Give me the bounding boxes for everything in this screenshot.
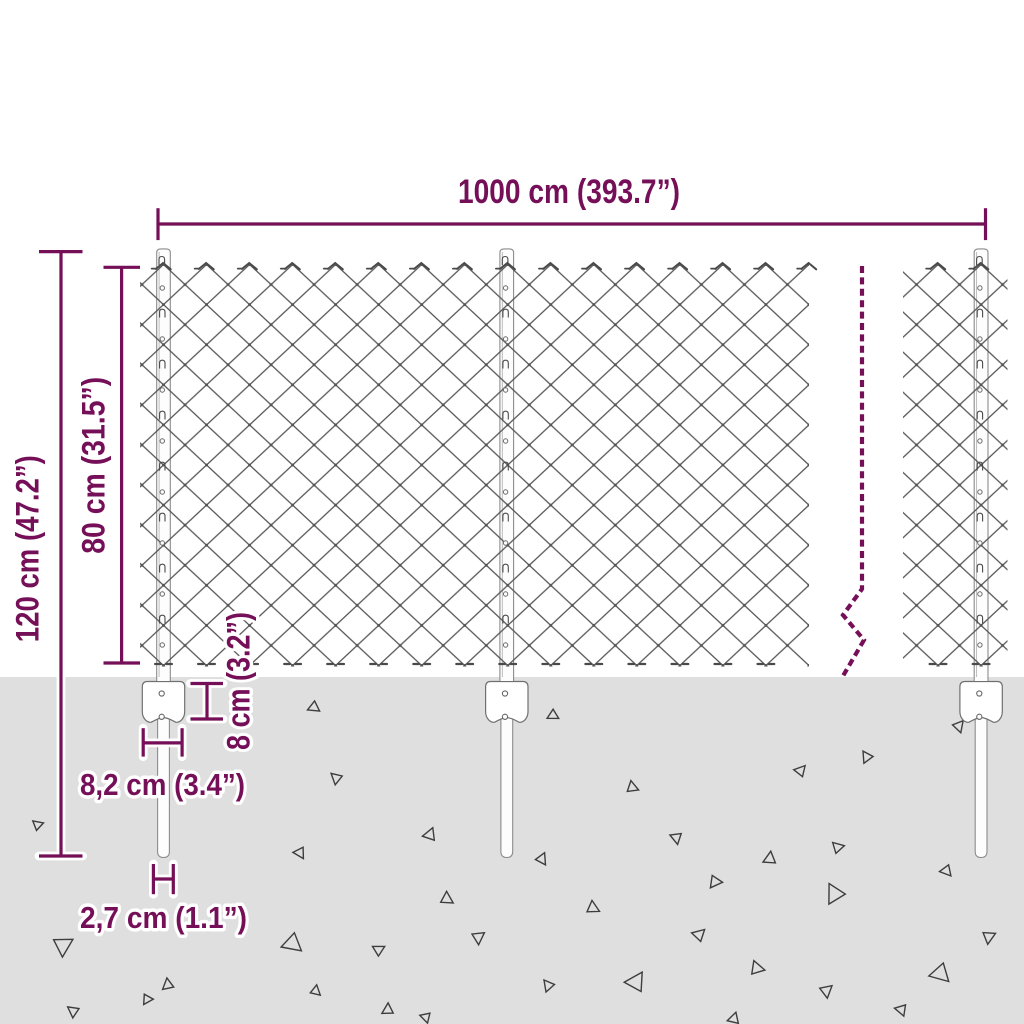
- svg-text:120 cm (47.2”): 120 cm (47.2”): [10, 455, 46, 642]
- svg-text:80 cm (31.5”): 80 cm (31.5”): [76, 377, 112, 554]
- svg-text:1000 cm (393.7”): 1000 cm (393.7”): [458, 173, 680, 211]
- svg-text:2,7 cm (1.1”): 2,7 cm (1.1”): [80, 900, 247, 935]
- svg-text:8,2 cm (3.4”): 8,2 cm (3.4”): [80, 767, 245, 802]
- svg-text:8 cm (3.2”): 8 cm (3.2”): [221, 612, 257, 750]
